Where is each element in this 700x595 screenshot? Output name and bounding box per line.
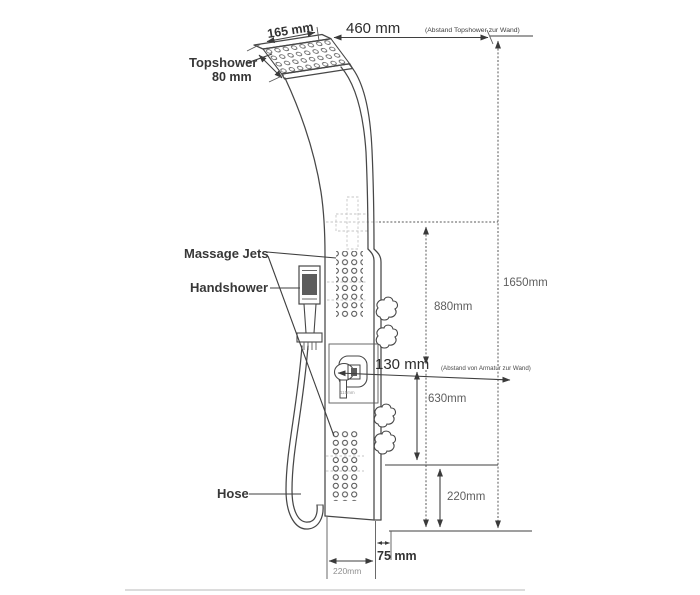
dim-75: 75 mm	[377, 531, 417, 563]
topshower-label: Topshower	[189, 55, 257, 70]
dim-220-right-label: 220mm	[447, 491, 485, 503]
dim-1650-label: 1650mm	[503, 277, 548, 289]
hose-figure	[286, 346, 323, 529]
dim-220-right: 220mm	[385, 465, 498, 527]
topshower-spray-face	[263, 39, 350, 74]
dim-130-label: 130 mm	[375, 356, 429, 373]
dim-460-note: (Abstand Topshower zur Wand)	[425, 27, 520, 34]
dim-1650: 1650mm	[498, 41, 548, 528]
dim-165-label: 165 mm	[266, 20, 314, 41]
dim-460-label: 460 mm	[346, 20, 400, 37]
knob-1	[376, 297, 397, 320]
knob-4	[374, 431, 395, 454]
massage-jets-label: Massage Jets	[184, 246, 269, 261]
panel-body	[285, 64, 381, 579]
wall-bracket-ghost	[326, 197, 378, 249]
handshower-figure	[297, 266, 322, 350]
dim-165: 165 mm	[266, 20, 319, 42]
dim-220-bottom-label: 220mm	[333, 566, 361, 576]
massage-jets-lower	[326, 431, 364, 501]
diagram-canvas: 115mm 165 mm 460 mm (Abstand Topshower z…	[0, 0, 700, 595]
dim-80-label: 80 mm	[212, 70, 252, 84]
dim-220-bottom: 220mm	[329, 561, 373, 576]
shower-panel-technical-drawing: 115mm 165 mm 460 mm (Abstand Topshower z…	[0, 0, 700, 595]
knob-2	[376, 325, 397, 348]
dim-880: 880mm	[379, 222, 498, 364]
massage-jets-upper	[327, 251, 366, 318]
dim-630-label: 630mm	[428, 393, 466, 405]
dim-460: 460 mm (Abstand Topshower zur Wand)	[334, 20, 533, 44]
hose-label: Hose	[217, 486, 249, 501]
dim-880-label: 880mm	[434, 301, 472, 313]
dim-75-label: 75 mm	[377, 549, 417, 563]
handshower-label: Handshower	[190, 280, 268, 295]
knob-3	[374, 404, 395, 427]
dim-130-note: (Abstand von Armatur zur Wand)	[441, 365, 531, 372]
dim-115-label: 115mm	[340, 390, 355, 395]
dim-630: 630mm	[417, 370, 466, 527]
